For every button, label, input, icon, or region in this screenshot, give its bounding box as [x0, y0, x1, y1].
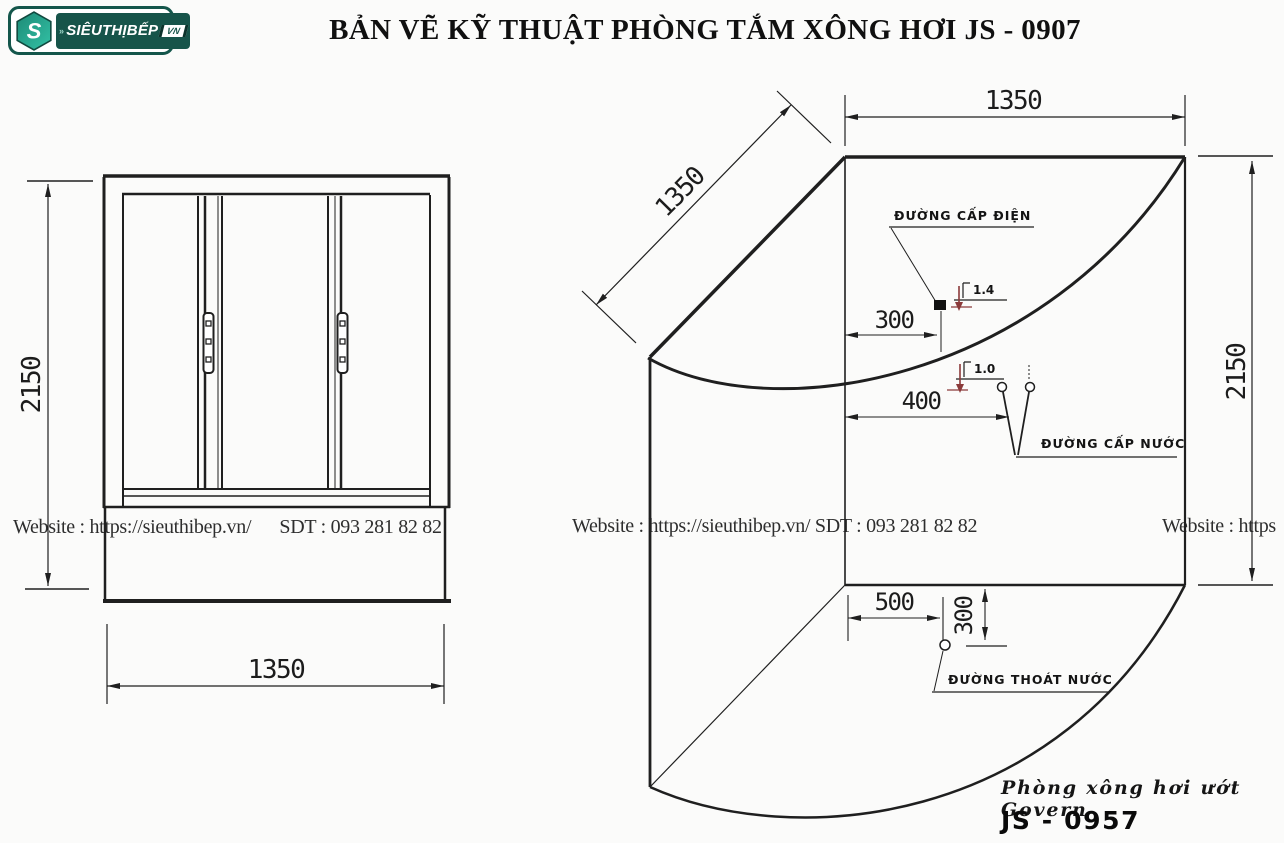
drain-annotation: 500 300 ĐƯỜNG THOÁT NƯỚC — [848, 588, 1113, 692]
front-width-dim-text: 1350 — [248, 655, 305, 685]
front-height-dim-text: 2150 — [17, 357, 47, 414]
elevation-arrow-icon — [956, 384, 964, 393]
water-outlet-point — [998, 383, 1007, 392]
page-title: BẢN VẼ KỸ THUẬT PHÒNG TẮM XÔNG HƠI JS - … — [320, 14, 1090, 47]
sieuthibep-logo: S » SIÊUTHỊBẾP VN — [8, 6, 174, 55]
electric-offset-dim-text: 300 — [875, 306, 914, 334]
drain-offset-y-dim-text: 300 — [950, 597, 978, 636]
electric-height-mark: 1.4 — [973, 283, 994, 297]
ceiling-arc — [648, 157, 1185, 389]
water-supply-label: ĐƯỜNG CẤP NƯỚC — [1041, 434, 1185, 451]
water-supply-annotation: 1.0 400 ĐƯỜNG CẤP NƯỚC — [845, 362, 1185, 457]
drain-point — [940, 640, 950, 650]
logo-chevron: » — [59, 26, 64, 36]
electric-point-marker — [934, 300, 946, 310]
door-handle-right — [338, 313, 348, 373]
plan-view-drawing: 1350 1350 2150 ĐƯỜNG CẤP ĐIỆN 300 — [582, 86, 1273, 817]
logo-vn-tag: VN — [159, 25, 189, 37]
front-view-drawing: 2150 1350 — [17, 176, 451, 704]
product-model-text: JS - 0957 — [1001, 806, 1140, 835]
hexagon-s-icon: S — [15, 11, 53, 51]
water-outlet-point — [1026, 383, 1035, 392]
logo-brand-text: SIÊUTHỊBẾP — [66, 22, 158, 39]
logo-wordmark: » SIÊUTHỊBẾP VN — [56, 13, 190, 49]
plan-depth-dimension: 1350 — [582, 91, 831, 343]
shower-tray — [103, 508, 451, 601]
door-handle-left — [204, 313, 214, 373]
electric-supply-label: ĐƯỜNG CẤP ĐIỆN — [894, 206, 1031, 223]
sliding-door-stiles — [198, 196, 341, 489]
plan-width-dimension: 1350 — [845, 86, 1185, 146]
plan-width-dim-text: 1350 — [985, 86, 1042, 116]
plan-depth-dim-text: 1350 — [650, 162, 711, 223]
plan-height-dimension: 2150 — [1198, 156, 1273, 585]
front-width-dimension: 1350 — [107, 624, 444, 704]
svg-text:S: S — [27, 18, 42, 43]
drain-offset-x-dim-text: 500 — [875, 588, 914, 616]
water-offset-dim-text: 400 — [902, 387, 941, 415]
technical-drawing-sheet: 2150 1350 1350 — [0, 0, 1284, 843]
drain-label: ĐƯỜNG THOÁT NƯỚC — [948, 672, 1113, 687]
front-height-dimension: 2150 — [17, 181, 93, 589]
water-height-mark: 1.0 — [974, 362, 995, 376]
plan-height-dim-text: 2150 — [1222, 344, 1252, 401]
